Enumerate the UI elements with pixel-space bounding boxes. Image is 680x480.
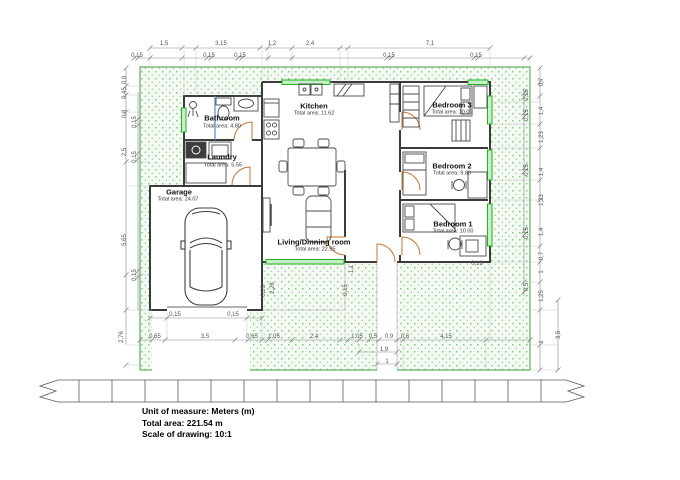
- dim-label-right_outer-1: 1,4: [539, 107, 545, 115]
- room-label-laundry: Laundry: [207, 153, 237, 161]
- dim-label-bottom2-8: 0,6: [401, 334, 409, 340]
- dim-label-bottom2-5: 1,05: [351, 334, 363, 340]
- break-symbol-left: [40, 380, 58, 402]
- dim-label-top1-0: 1,5: [160, 41, 168, 47]
- room-label-kitchen: Kitchen: [300, 102, 328, 110]
- dim-label-right_inner-0: 0,15: [524, 89, 530, 101]
- dim-label-left_outer-1: 0,45: [122, 87, 128, 99]
- drawing-info-block: Unit of measure: Meters (m) Total area: …: [142, 406, 254, 441]
- dim-label-bottom2-2: 0,65: [246, 334, 258, 340]
- room-area-laundry: Total area: 5.55: [204, 163, 242, 169]
- dim-label-bottom4-0: 1: [385, 359, 388, 365]
- dim-label-left_outer-2: 0,8: [122, 110, 128, 118]
- dim-label-left_outer-4: 5,65: [122, 234, 128, 246]
- dim-label-bottom2-7: 0,9: [385, 334, 393, 340]
- dim-label-left_inner-1: 0,15: [132, 151, 138, 163]
- dim-label-top2-1: 0,15: [203, 53, 215, 59]
- room-label-bedroom2: Bedroom 2: [432, 162, 471, 170]
- dim-label-right_outer-9: 1: [539, 340, 545, 343]
- dim-label-top2-3: 0,15: [383, 53, 395, 59]
- dim-label-top1-2: 1,2: [268, 41, 276, 47]
- dim-label-bottom2-3: 1,05: [268, 334, 280, 340]
- dim-label-left_outer-3: 2,5: [122, 148, 128, 156]
- dim-label-top2-2: 0,15: [234, 53, 246, 59]
- car-icon: [181, 208, 231, 305]
- dim-label-top2-4: 0,15: [470, 53, 482, 59]
- dim-label-left_outer-5: 2,76: [119, 331, 125, 343]
- dim-label-bottom2-0: 0,65: [149, 334, 161, 340]
- dim-label-right_inner-2: 0,15: [524, 164, 530, 176]
- dim-label-right_outer-4: 1,23: [539, 194, 545, 206]
- room-area-bathroom: Total area: 4.80: [203, 124, 241, 130]
- dim-label-left_outer-0: 0,9: [122, 76, 128, 84]
- dim-label-detail-3: 0,15: [343, 284, 349, 296]
- dim-label-detail-2: 1,1: [349, 265, 355, 273]
- dim-label-bottom2-1: 3,5: [201, 334, 209, 340]
- dim-label-right_outer-3: 1,4: [539, 168, 545, 176]
- dim-label-detail-1: 0,16: [261, 285, 267, 297]
- dim-label-top2-0: 0,15: [131, 53, 143, 59]
- dim-label-right_outer-2: 1,23: [539, 131, 545, 143]
- dim-label-right_outer-6: 0,7: [539, 252, 545, 260]
- break-symbol-right: [566, 380, 584, 402]
- dim-label-right_outer-8: 1,25: [539, 290, 545, 302]
- room-label-bedroom1: Bedroom 1: [433, 220, 472, 228]
- section-band: [40, 380, 584, 402]
- dim-label-bottom1-1: 0,15: [227, 312, 239, 318]
- dim-label-bottom3-0: 1,9: [380, 347, 388, 353]
- dim-label-detail-0: 2,28: [270, 282, 276, 294]
- room-label-bedroom3: Bedroom 3: [432, 101, 471, 109]
- room-label-bathroom: Bathroom: [204, 114, 239, 122]
- dim-label-top1-3: 2,4: [306, 41, 314, 47]
- dim-label-right_inner-1: 0,15: [524, 109, 530, 121]
- dim-label-top1-4: 7,1: [426, 41, 434, 47]
- dim-label-right_outer-7: 1: [539, 270, 545, 273]
- washer-icon: [186, 142, 206, 158]
- dim-label-right_outer-0: 0,7: [539, 78, 545, 86]
- room-area-bedroom2: Total area: 9.80: [433, 171, 471, 177]
- dim-label-bottom2-9: 4,15: [440, 334, 452, 340]
- dim-label-bottom2-6: 0,5: [369, 334, 377, 340]
- dim-label-top1-1: 3,15: [215, 41, 227, 47]
- room-label-living: Living/Dinning room: [278, 238, 351, 246]
- dim-label-far_right-0: 3,5: [556, 331, 562, 339]
- info-unit: Unit of measure: Meters (m): [142, 406, 254, 418]
- room-area-bedroom1: Total area: 10.00: [433, 229, 474, 235]
- room-area-kitchen: Total area: 11.62: [294, 111, 335, 117]
- dim-label-left_inner-0: 0,15: [132, 116, 138, 128]
- info-scale: Scale of drawing: 10:1: [142, 429, 254, 441]
- room-label-garage: Garage: [166, 188, 192, 196]
- dim-label-right_outer-5: 1,4: [539, 228, 545, 236]
- room-area-garage: Total area: 24.07: [158, 197, 199, 203]
- dim-label-bottom1-0: 0,15: [169, 312, 181, 318]
- dim-label-right_inner-4: 0,5: [524, 283, 530, 291]
- room-area-living: Total area: 22.95: [295, 247, 336, 253]
- dim-label-right_inner-3: 0,15: [524, 227, 530, 239]
- floor-plan-page: Bathroom Total area: 4.80 Laundry Total …: [0, 0, 680, 480]
- room-area-bedroom3: Total area: 10.00: [432, 110, 473, 116]
- info-total-area: Total area: 221.54 m: [142, 418, 254, 430]
- dim-label-bottom2-4: 2,4: [310, 334, 318, 340]
- dim-label-left_inner-2: 0,15: [132, 269, 138, 281]
- dim-label-detail-4: 0,18: [471, 261, 483, 267]
